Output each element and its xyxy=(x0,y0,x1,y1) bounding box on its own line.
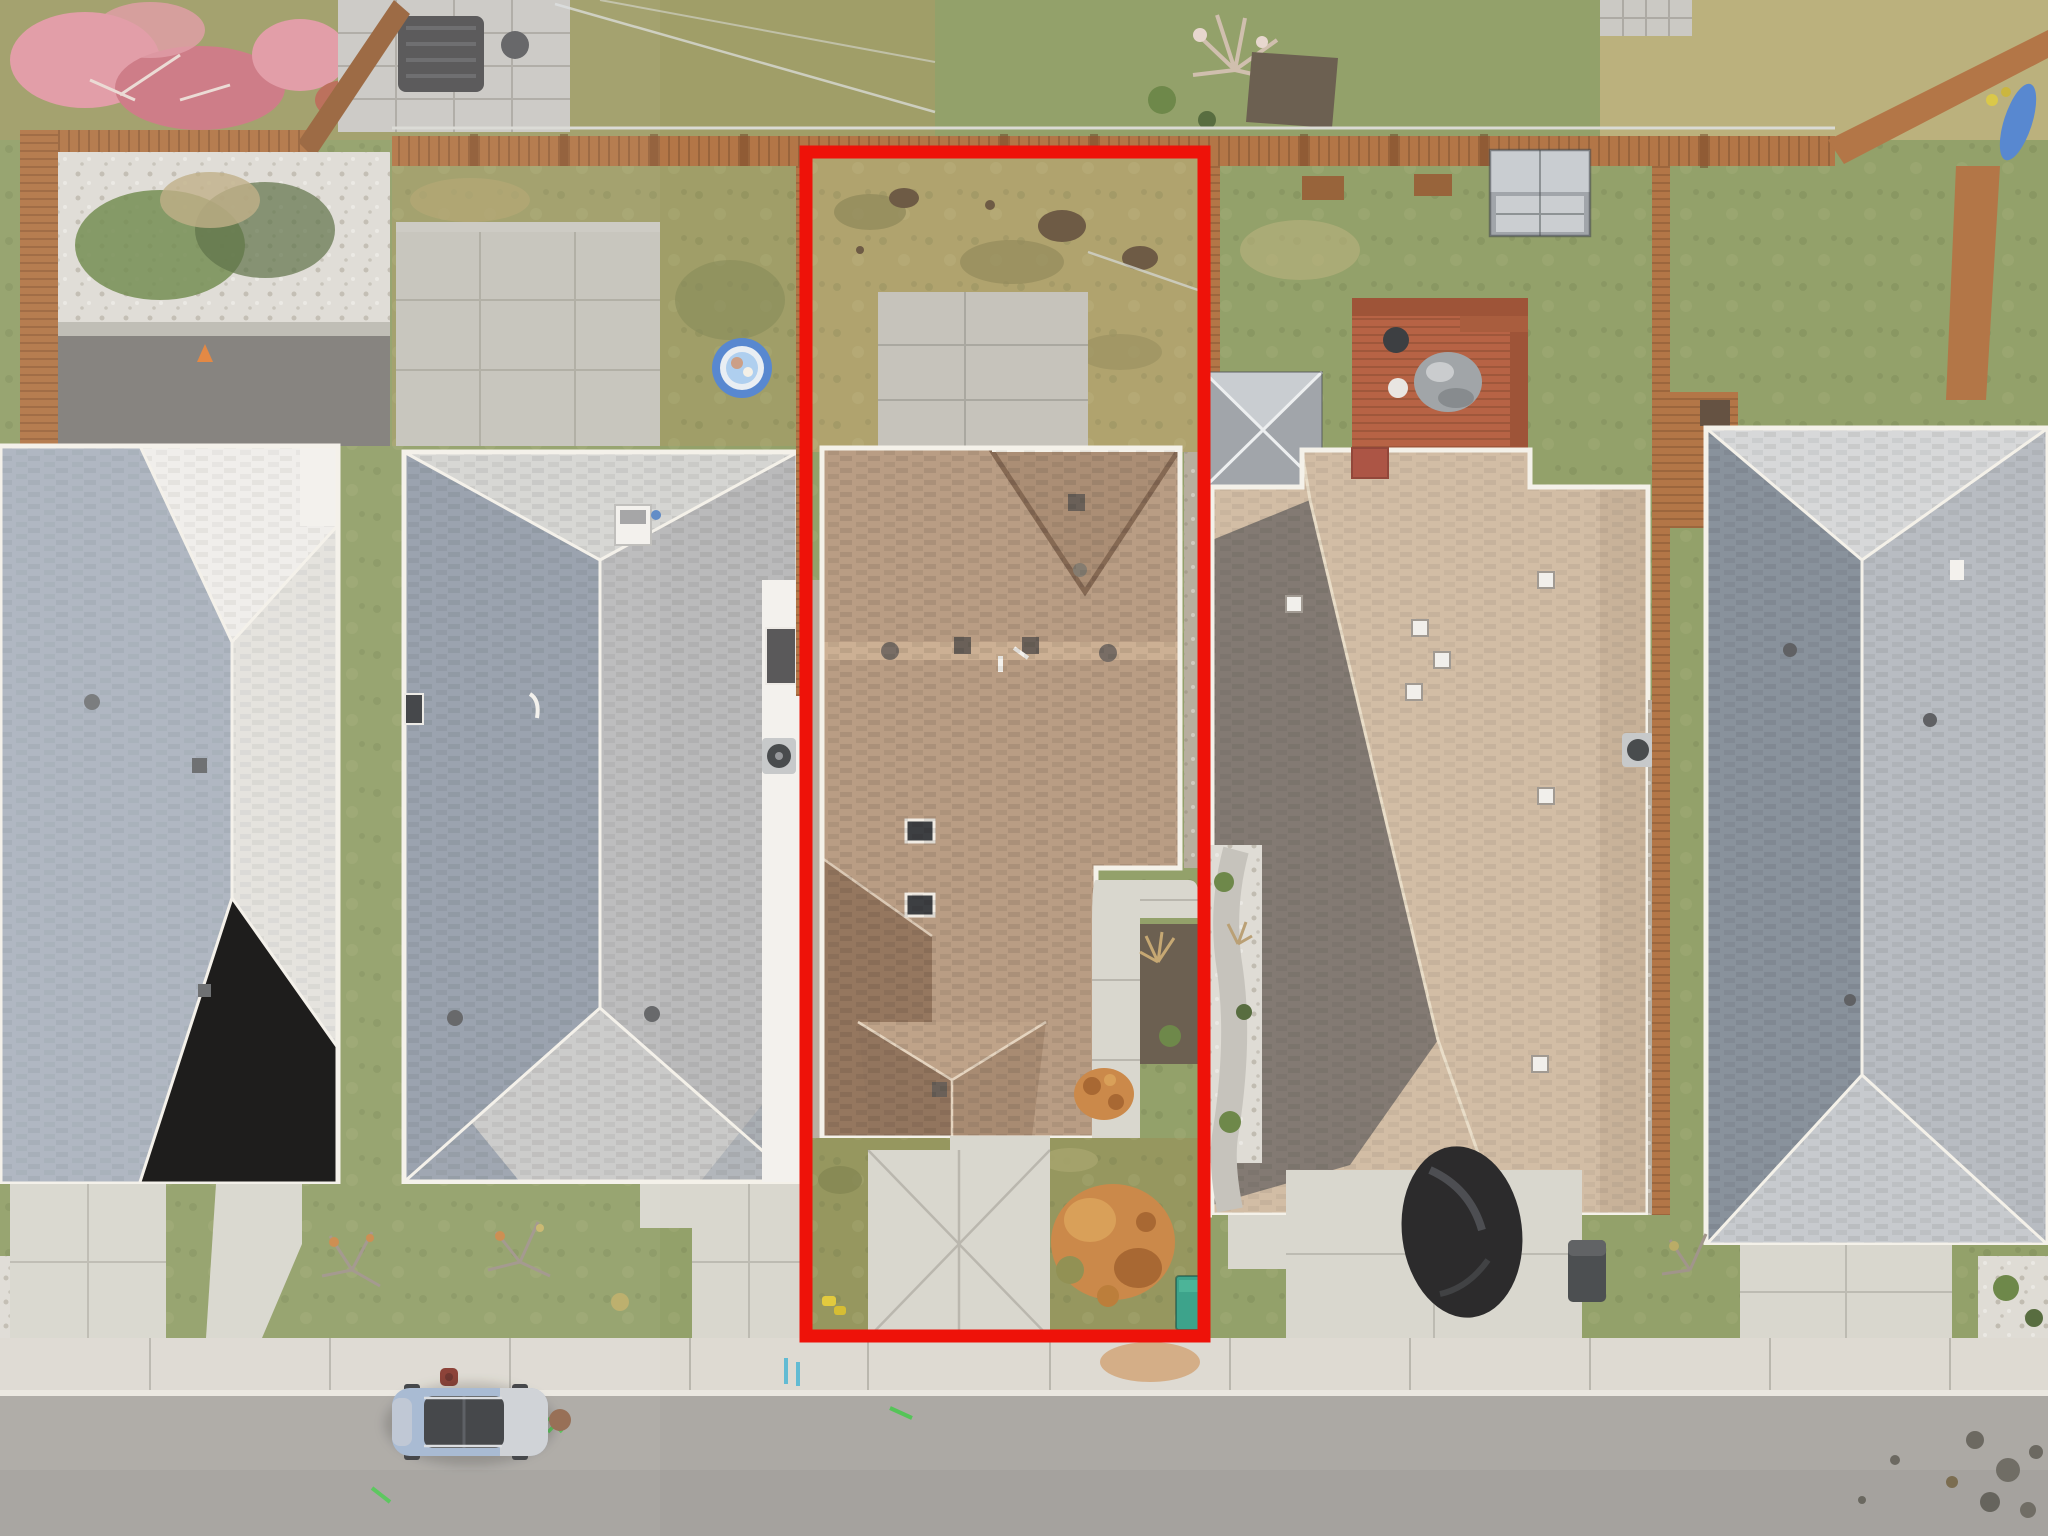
photo-haze-left xyxy=(0,0,660,1536)
aerial-photo xyxy=(0,0,2048,1536)
aerial-photo-stage xyxy=(0,0,2048,1536)
